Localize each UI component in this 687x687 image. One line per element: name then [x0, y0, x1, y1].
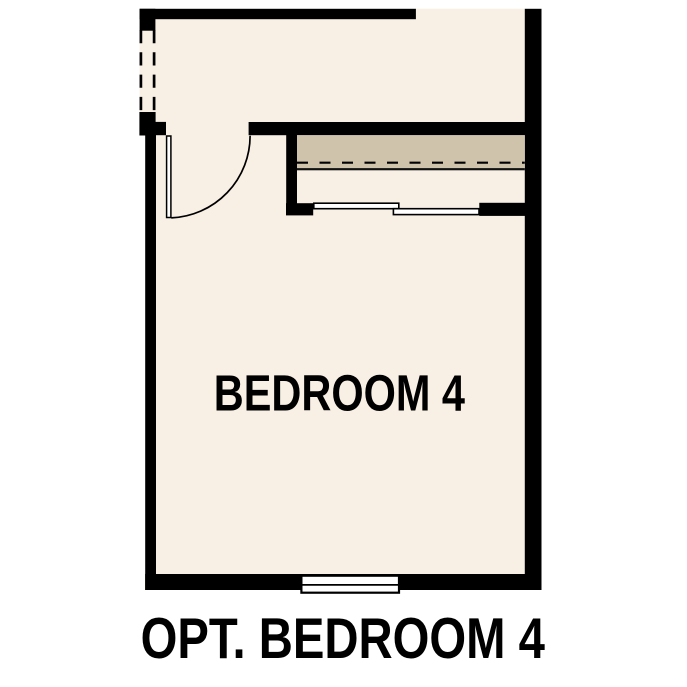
svg-text:OPT. BEDROOM 4: OPT. BEDROOM 4: [141, 607, 545, 671]
svg-text:BEDROOM 4: BEDROOM 4: [214, 365, 465, 422]
